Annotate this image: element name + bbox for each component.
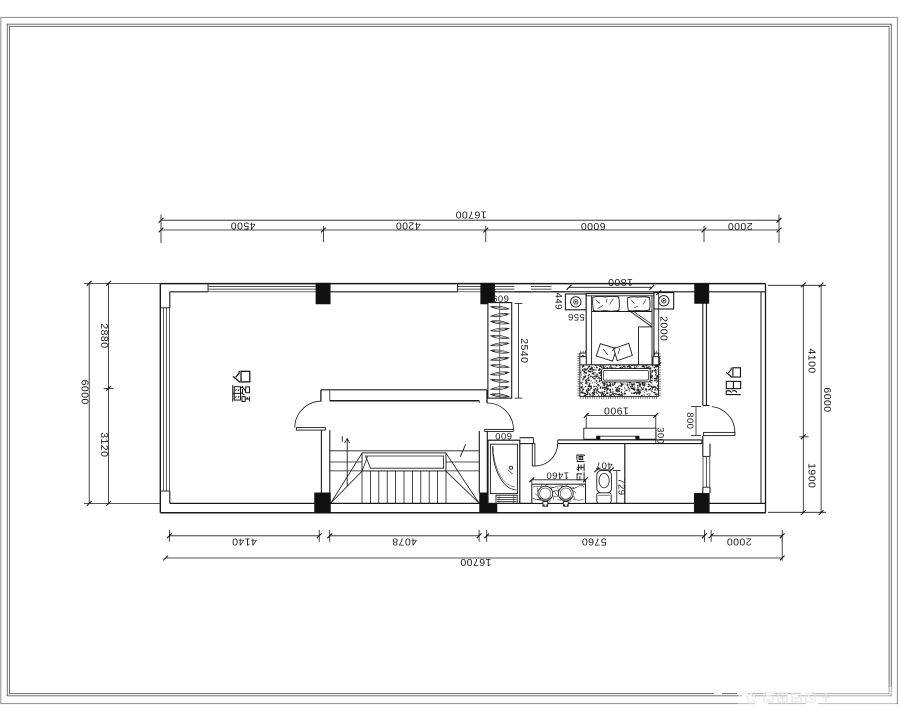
svg-text:16700: 16700 — [455, 208, 486, 220]
svg-text:6000: 6000 — [821, 387, 833, 412]
svg-text:2000: 2000 — [727, 220, 752, 232]
svg-text:300: 300 — [655, 427, 666, 444]
svg-text:4500: 4500 — [230, 219, 255, 231]
svg-text:2000: 2000 — [657, 316, 669, 341]
svg-text:1900: 1900 — [806, 463, 818, 488]
svg-text:4100: 4100 — [806, 349, 818, 374]
svg-text:6000: 6000 — [580, 220, 605, 232]
svg-text:16700: 16700 — [460, 556, 491, 568]
svg-text:449: 449 — [553, 293, 564, 310]
svg-text:407: 407 — [595, 460, 612, 471]
svg-text:4078: 4078 — [392, 535, 417, 547]
svg-text:5760: 5760 — [581, 536, 606, 548]
svg-text:4200: 4200 — [395, 219, 420, 231]
svg-text:6000: 6000 — [78, 380, 90, 405]
svg-text:609: 609 — [492, 292, 509, 303]
svg-text:1460: 1460 — [546, 469, 569, 480]
svg-text:3120: 3120 — [98, 432, 110, 457]
svg-text:800: 800 — [684, 412, 695, 429]
svg-text:1900: 1900 — [604, 404, 629, 416]
svg-text:600: 600 — [495, 430, 512, 441]
svg-text:556: 556 — [568, 311, 585, 322]
svg-text:4140: 4140 — [232, 535, 257, 547]
svg-text:2540: 2540 — [518, 338, 530, 363]
svg-text:2000: 2000 — [726, 536, 751, 548]
svg-text:2880: 2880 — [98, 323, 110, 348]
svg-text:1800: 1800 — [608, 276, 633, 288]
